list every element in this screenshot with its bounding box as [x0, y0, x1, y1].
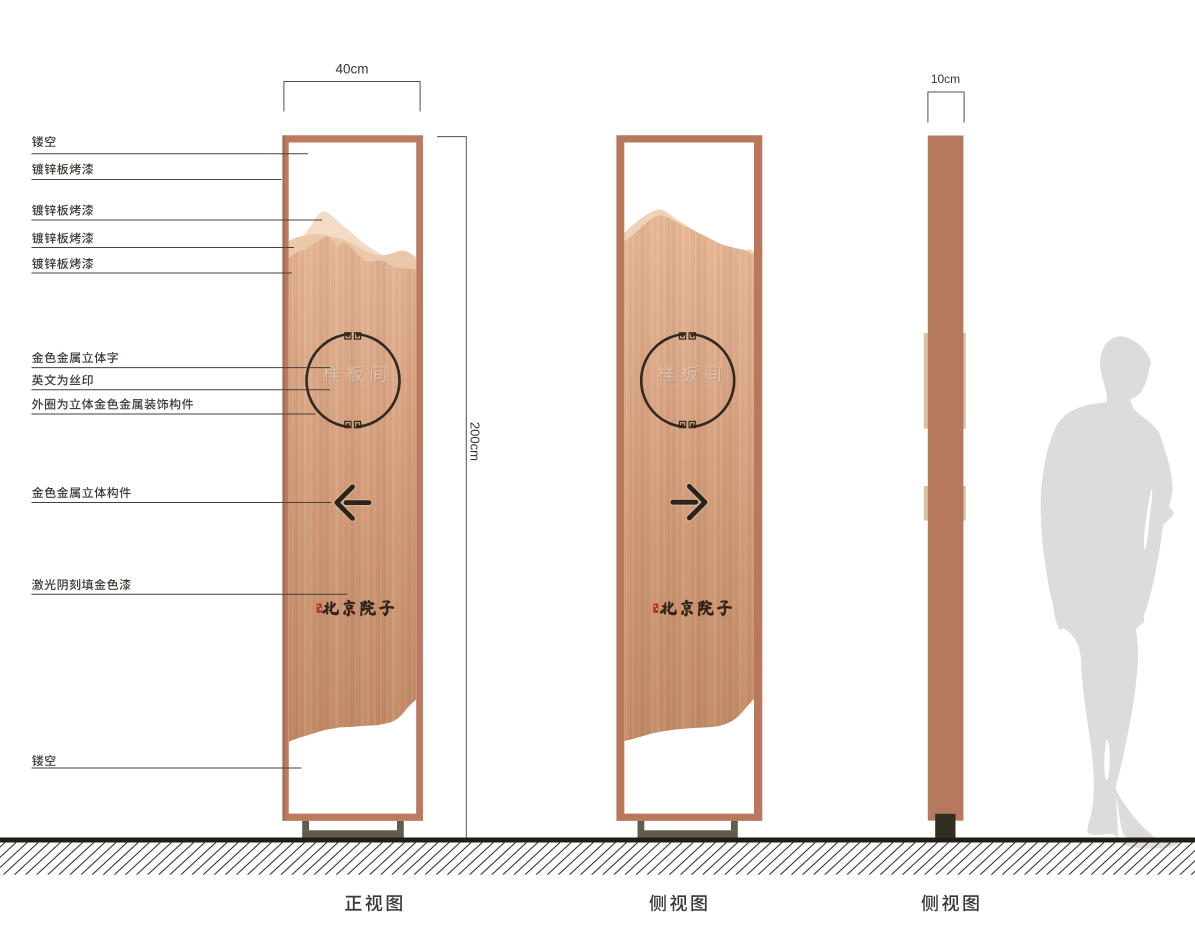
svg-text:200cm: 200cm [468, 422, 483, 461]
svg-text:MODEL ROOM DISPLAY: MODEL ROOM DISPLAY [654, 389, 724, 395]
svg-text:40cm: 40cm [335, 61, 368, 76]
svg-text:10cm: 10cm [931, 72, 960, 86]
